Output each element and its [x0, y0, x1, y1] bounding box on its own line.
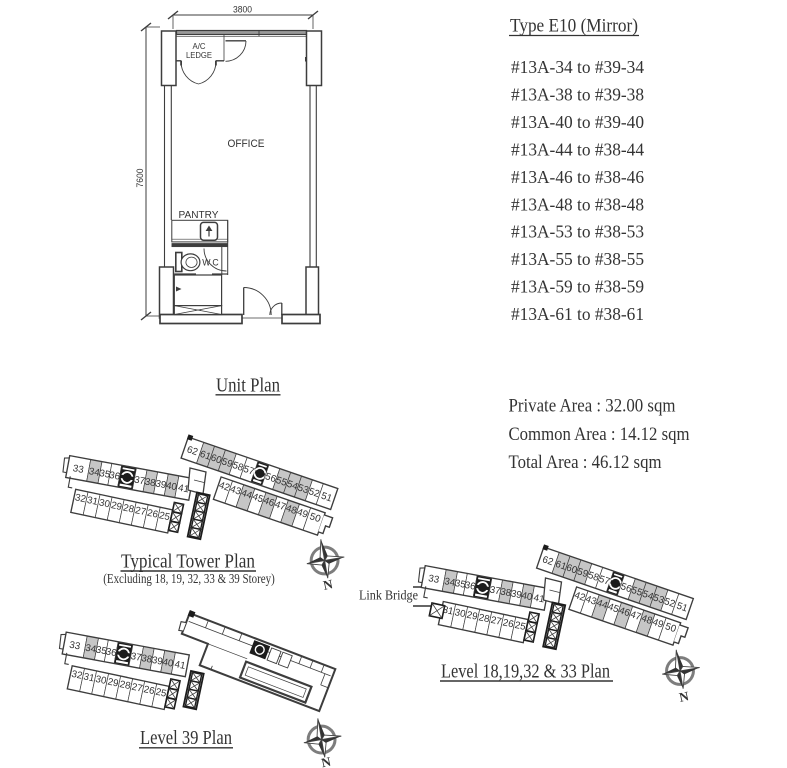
svg-text:Total Area : 46.12 sqm: Total Area : 46.12 sqm [509, 452, 662, 473]
svg-text:#13A-59 to #38-59: #13A-59 to #38-59 [511, 277, 644, 297]
svg-text:Level 39 Plan: Level 39 Plan [140, 728, 232, 749]
svg-text:41: 41 [174, 659, 187, 672]
svg-text:PANTRY: PANTRY [179, 210, 219, 221]
svg-text:32: 32 [74, 492, 87, 505]
svg-text:31: 31 [82, 671, 95, 684]
svg-text:Unit Plan: Unit Plan [216, 376, 280, 397]
svg-text:W.C: W.C [202, 258, 219, 268]
svg-text:Level 18,19,32 & 33 Plan: Level 18,19,32 & 33 Plan [441, 661, 610, 683]
svg-text:#13A-53 to #38-53: #13A-53 to #38-53 [511, 222, 644, 242]
svg-text:3800: 3800 [233, 5, 252, 16]
svg-text:#13A-48 to #38-48: #13A-48 to #38-48 [511, 194, 644, 214]
svg-text:Link Bridge: Link Bridge [359, 588, 418, 603]
svg-text:27: 27 [490, 615, 503, 628]
svg-text:29: 29 [466, 610, 479, 623]
svg-text:29: 29 [110, 500, 123, 513]
svg-text:#13A-61 to #38-61: #13A-61 to #38-61 [511, 304, 644, 324]
svg-text:27: 27 [131, 682, 144, 695]
svg-text:LEDGE: LEDGE [186, 51, 212, 60]
svg-text:27: 27 [134, 505, 147, 518]
svg-text:N: N [678, 688, 691, 705]
svg-text:Private Area : 32.00 sqm: Private Area : 32.00 sqm [509, 396, 676, 417]
svg-text:32: 32 [70, 669, 83, 682]
svg-text:#13A-38 to #39-38: #13A-38 to #39-38 [511, 84, 644, 104]
svg-text:N: N [322, 576, 335, 593]
svg-text:#13A-55 to #38-55: #13A-55 to #38-55 [511, 249, 644, 269]
svg-text:7600: 7600 [135, 169, 146, 188]
svg-text:#13A-44 to #38-44: #13A-44 to #38-44 [511, 139, 644, 159]
svg-text:29: 29 [106, 677, 119, 690]
svg-text:(Excluding 18, 19, 32, 33 & 39: (Excluding 18, 19, 32, 33 & 39 Storey) [103, 571, 275, 586]
svg-text:OFFICE: OFFICE [228, 138, 265, 150]
svg-text:N: N [320, 754, 333, 768]
svg-text:31: 31 [86, 495, 99, 508]
svg-text:Typical Tower Plan: Typical Tower Plan [121, 552, 255, 573]
svg-text:A/C: A/C [193, 42, 206, 51]
svg-text:Common Area : 14.12 sqm: Common Area : 14.12 sqm [509, 424, 690, 445]
svg-text:#13A-46 to #38-46: #13A-46 to #38-46 [511, 167, 644, 187]
svg-text:#13A-40 to #39-40: #13A-40 to #39-40 [511, 112, 644, 132]
svg-text:Type E10 (Mirror): Type E10 (Mirror) [510, 16, 638, 37]
svg-text:#13A-34 to #39-34: #13A-34 to #39-34 [511, 57, 644, 77]
